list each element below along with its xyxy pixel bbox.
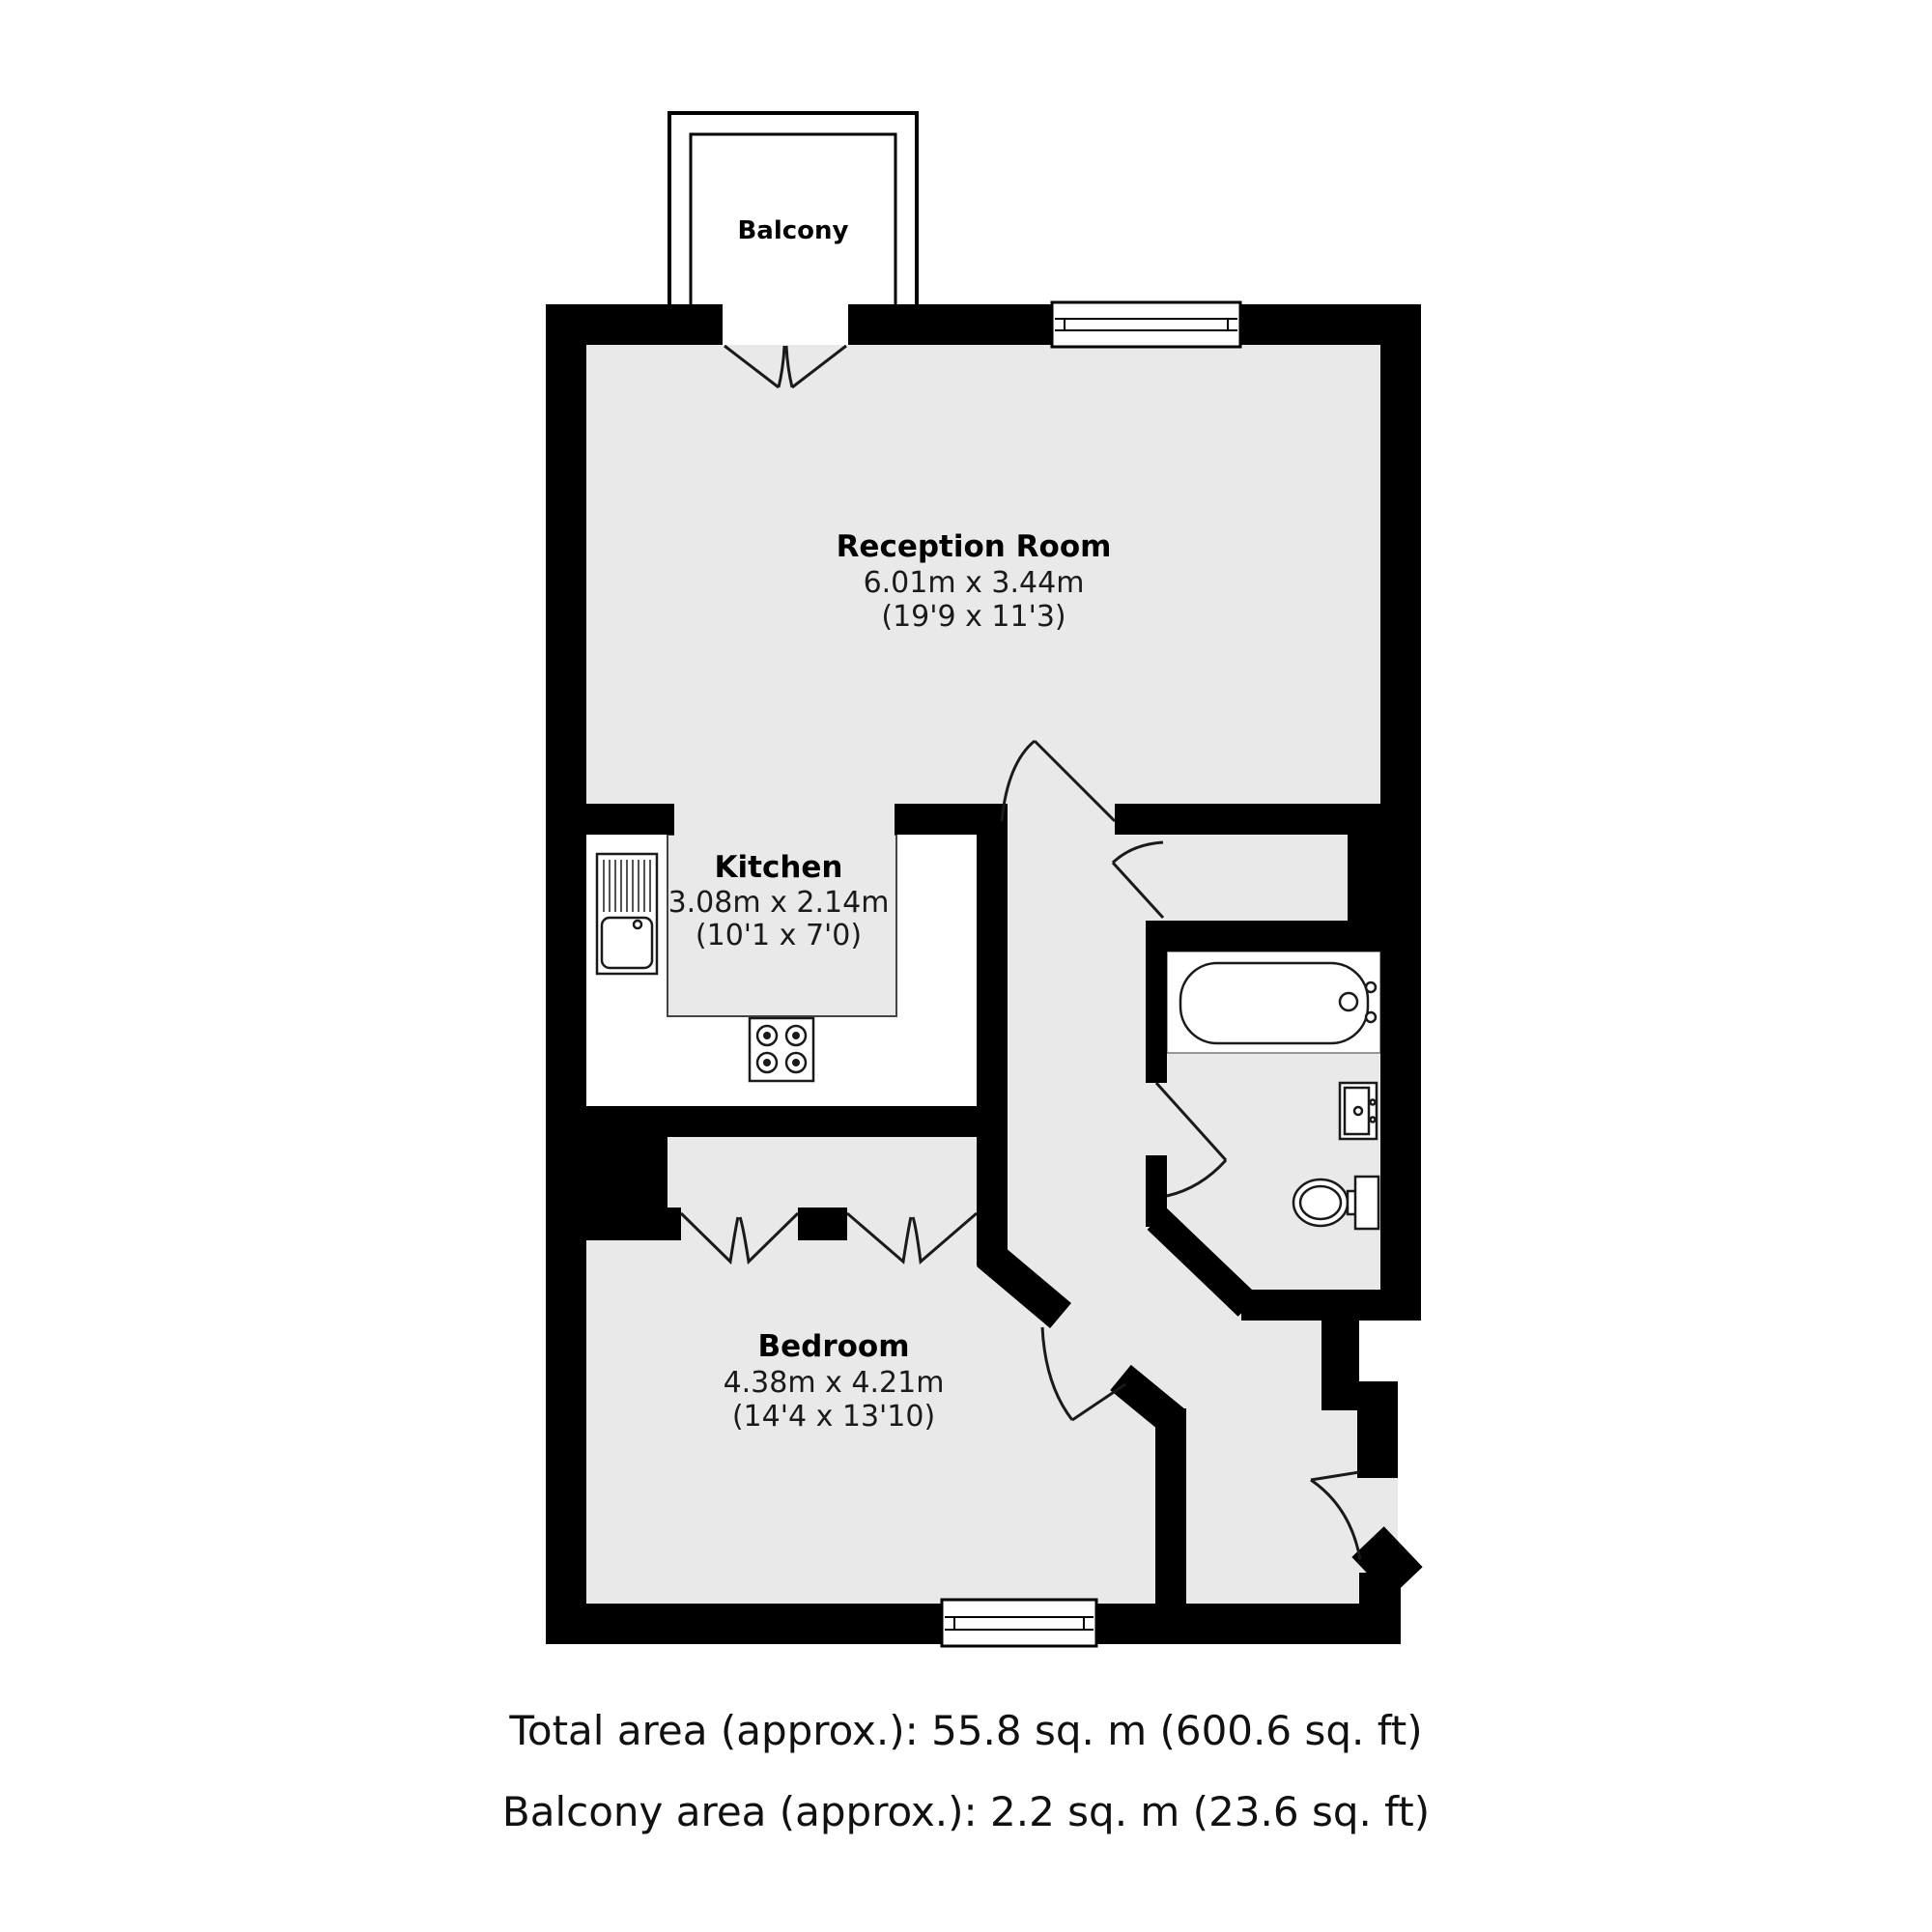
kitchen-opening-floor [674, 804, 895, 837]
wash-basin [1340, 1083, 1377, 1139]
reception-room-size-imperial: (19'9 x 11'3) [881, 600, 1065, 634]
wall-right [1380, 304, 1421, 1311]
reception-room-size-metric: 6.01m x 3.44m [864, 566, 1085, 600]
wall-bedroom-right [1155, 1408, 1186, 1604]
wall-duct [1348, 835, 1380, 952]
wall-notch-vertical [1321, 1311, 1359, 1383]
total-area-text: Total area (approx.): 55.8 sq. m (600.6 … [508, 1707, 1422, 1754]
balcony-outer-rail [669, 113, 917, 304]
footer: Total area (approx.): 55.8 sq. m (600.6 … [502, 1707, 1430, 1835]
wall-bifold-left-jamb [662, 1207, 681, 1240]
balcony-area-text: Balcony area (approx.): 2.2 sq. m (23.6 … [502, 1788, 1430, 1835]
balcony-label: Balcony [737, 216, 848, 245]
kitchen-label: Kitchen [714, 850, 842, 885]
balcony-outline [669, 113, 917, 304]
toilet [1293, 1177, 1378, 1229]
kitchen-sink [597, 854, 657, 974]
wall-lobby-bottom-right [1359, 1573, 1401, 1644]
bedroom-size-imperial: (14'4 x 13'10) [732, 1400, 935, 1434]
wall-hall-left [977, 835, 1008, 1265]
bedroom-label: Bedroom [757, 1329, 909, 1364]
wall-bath-top [1146, 921, 1348, 952]
wall-bifold-center-pier [798, 1207, 847, 1240]
reception-room-label: Reception Room [837, 529, 1112, 564]
wall-reception-kitchen-left [586, 804, 674, 835]
exterior-right-of-lobby [1398, 1381, 1465, 1652]
wall-reception-kitchen-right [895, 804, 1008, 835]
wall-top-mid [848, 304, 1052, 345]
wall-bathroom-left-upper [1146, 952, 1167, 1083]
wall-left [546, 304, 586, 1644]
wall-wardrobe-block [586, 1137, 668, 1240]
floor-plan: Balcony Reception Room 6.01m x 3.44m (19… [0, 0, 1932, 1932]
wall-lobby-top [1321, 1381, 1398, 1410]
exterior-notch [1359, 1311, 1456, 1381]
bedroom-size-metric: 4.38m x 4.21m [724, 1366, 945, 1400]
bedroom-window [942, 1600, 1096, 1646]
floor-plan-page: Balcony Reception Room 6.01m x 3.44m (19… [0, 0, 1932, 1932]
kitchen-size-metric: 3.08m x 2.14m [668, 886, 890, 920]
hob [750, 1018, 813, 1081]
reception-window [1052, 302, 1240, 347]
kitchen-size-imperial: (10'1 x 7'0) [696, 919, 862, 952]
bath [1180, 963, 1376, 1043]
wall-reception-hall-right [1115, 804, 1380, 835]
wall-kitchen-bottom [586, 1106, 1008, 1137]
wall-lobby-right [1357, 1408, 1398, 1478]
